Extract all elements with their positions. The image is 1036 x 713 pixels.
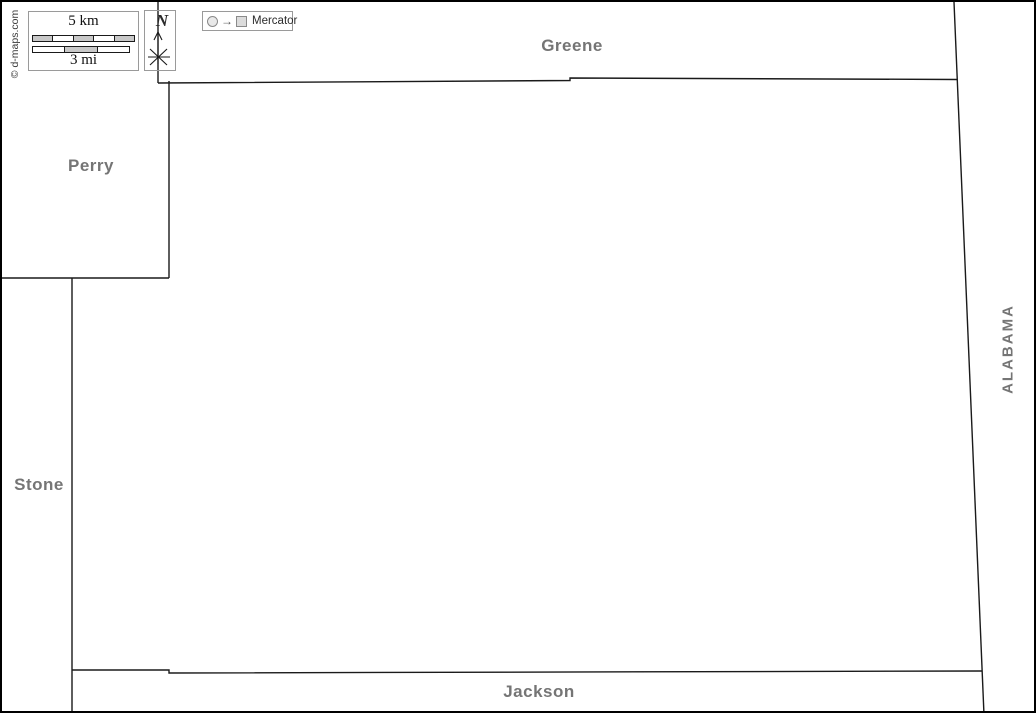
region-label-greene: Greene bbox=[541, 36, 603, 56]
jackson-border bbox=[72, 670, 982, 673]
arrow-right-icon: → bbox=[221, 15, 233, 27]
boundary-lines-layer bbox=[2, 2, 1036, 713]
projection-label: Mercator bbox=[252, 15, 297, 27]
alabama-state-line bbox=[954, 2, 984, 713]
scale-km-label: 5 km bbox=[68, 13, 98, 30]
projection-legend: → Mercator bbox=[202, 11, 293, 31]
scale-bar-km bbox=[32, 35, 135, 42]
scale-bar: 5 km 3 mi bbox=[28, 11, 139, 71]
credit-text: © d-maps.com bbox=[9, 10, 21, 78]
region-label-perry: Perry bbox=[68, 156, 114, 176]
region-label-alabama: ALABAMA bbox=[1000, 304, 1017, 394]
scale-mi-label: 3 mi bbox=[70, 52, 97, 69]
greene-border bbox=[158, 78, 957, 83]
north-label: N bbox=[156, 11, 168, 31]
flat-map-square-icon bbox=[236, 16, 247, 27]
region-label-stone: Stone bbox=[14, 475, 64, 495]
county-outline-map: 5 km 3 mi N → Mercator Greene Perry Ston… bbox=[0, 0, 1036, 713]
north-indicator: N bbox=[144, 10, 176, 71]
globe-circle-icon bbox=[207, 16, 218, 27]
region-label-jackson: Jackson bbox=[503, 682, 575, 702]
